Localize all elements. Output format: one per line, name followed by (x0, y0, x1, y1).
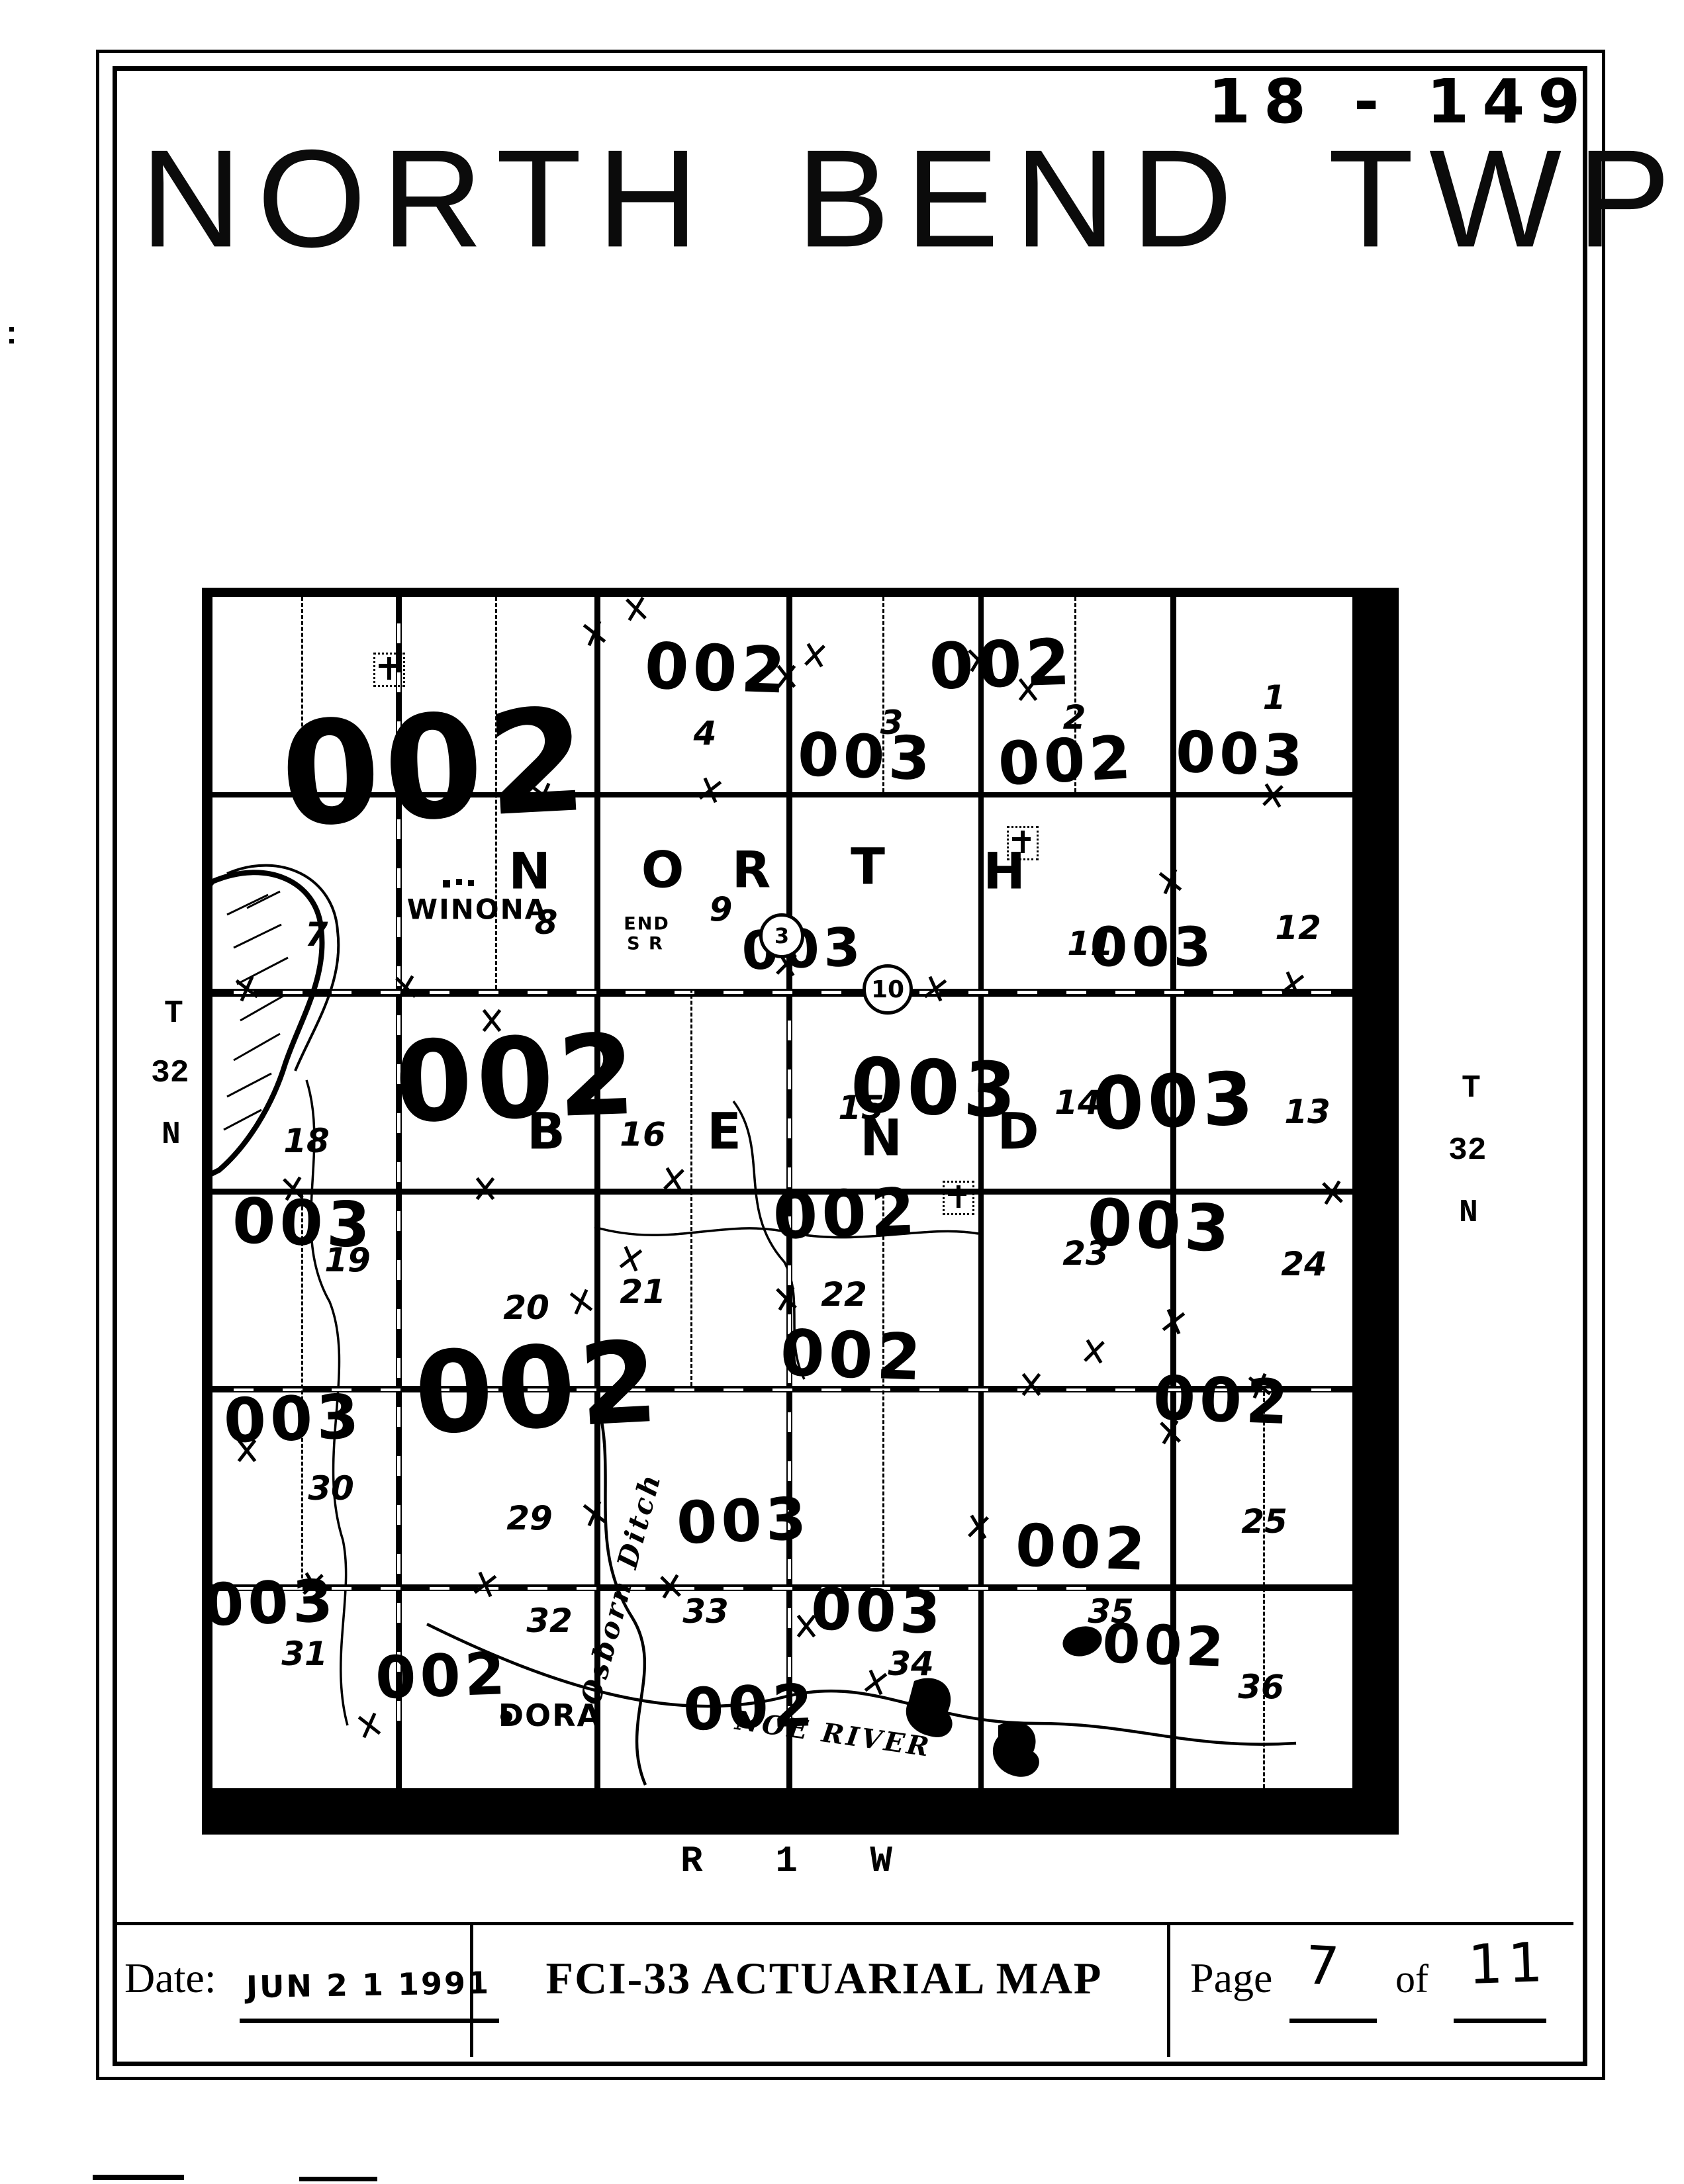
section-number-25: 25 (1241, 1502, 1287, 1541)
section-number-19: 19 (324, 1241, 371, 1279)
place-label-end: END (624, 914, 669, 934)
township-name-letter-r: R (732, 841, 771, 899)
rate-code-003: 003 (1092, 1056, 1258, 1147)
rate-code-002: 002 (277, 676, 594, 858)
rate-code-002: 002 (374, 1639, 510, 1712)
section-number-3: 3 (880, 704, 904, 742)
scanned-actuarial-map-page: 18 - 149 NORTH BEND TWP (0, 0, 1684, 2184)
township-label-left-t: T (164, 996, 183, 1032)
scan-noise-dash (93, 2175, 184, 2180)
footer-divider-2 (1167, 1922, 1170, 2057)
township-name-letter-n: N (860, 1109, 902, 1167)
section-number-1: 1 (1263, 678, 1286, 717)
township-name-letter-n: N (508, 842, 551, 901)
township-label-left-32: 32 (151, 1056, 189, 1091)
rate-code-002: 002 (412, 1316, 665, 1460)
scan-noise-dash (299, 2177, 377, 2181)
rate-code-003: 003 (202, 1567, 338, 1639)
scan-noise-dot (9, 339, 14, 343)
section-number-29: 29 (506, 1499, 553, 1537)
township-name-letter-h: H (983, 842, 1025, 901)
rate-code-002: 002 (779, 1316, 926, 1395)
section-number-33: 33 (682, 1592, 729, 1631)
rate-code-002: 002 (393, 1010, 641, 1148)
rate-code-002: 002 (928, 625, 1075, 704)
section-number-9: 9 (710, 890, 733, 929)
date-stamp: JUN 2 1 1991 (246, 1965, 491, 2005)
rate-code-002: 002 (772, 1174, 920, 1254)
section-number-24: 24 (1281, 1245, 1327, 1283)
footer-map-title: FCI-33 ACTUARIAL MAP (490, 1952, 1158, 2005)
highway-shield-10: 10 (863, 964, 913, 1015)
waterway-label-noe-river: NOE RIVER (733, 1705, 933, 1763)
section-number-7: 7 (305, 915, 328, 954)
waterway-label-osborn-ditch: Osborn Ditch (575, 1469, 668, 1707)
section-number-12: 12 (1275, 909, 1321, 947)
section-number-34: 34 (888, 1645, 934, 1683)
section-number-22: 22 (821, 1275, 867, 1314)
range-label: R 1 W (680, 1840, 917, 1882)
rate-code-002: 002 (643, 629, 790, 708)
section-number-21: 21 (620, 1273, 666, 1311)
section-number-2: 2 (1063, 698, 1086, 737)
section-number-20: 20 (503, 1289, 549, 1327)
place-label-winona: WINONA (407, 893, 547, 926)
page-label: Page (1190, 1954, 1272, 2003)
of-label: of (1395, 1956, 1428, 2002)
section-number-23: 23 (1062, 1234, 1109, 1273)
scan-noise-dot (9, 327, 14, 332)
date-label: Date: (124, 1954, 216, 2003)
rate-code-003: 003 (741, 916, 865, 981)
section-number-11: 11 (1067, 925, 1113, 963)
highway-shield-3: 3 (759, 913, 804, 958)
rate-code-002: 002 (1014, 1511, 1150, 1584)
page-title: NORTH BEND TWP (140, 130, 1684, 269)
section-number-13: 13 (1284, 1093, 1331, 1131)
section-number-32: 32 (526, 1602, 573, 1640)
rate-code-003: 003 (810, 1574, 945, 1647)
township-name-letter-d: D (997, 1102, 1039, 1161)
township-map: 0020020020030020030030030020030030030020… (202, 588, 1399, 1835)
township-label-right-n: N (1459, 1195, 1478, 1231)
rate-code-003: 003 (222, 1381, 364, 1457)
footer-top-rule (117, 1922, 1573, 1925)
township-label-right-32: 32 (1448, 1133, 1487, 1169)
township-name-letter-b: B (527, 1102, 565, 1161)
page-total: 11 (1467, 1931, 1549, 1997)
section-number-35: 35 (1088, 1592, 1134, 1631)
rate-code-003: 003 (1175, 719, 1308, 790)
place-label-dora: DORA (498, 1698, 602, 1733)
township-name-letter-e: E (707, 1102, 741, 1161)
township-label-left-n: N (162, 1117, 181, 1153)
section-number-36: 36 (1238, 1668, 1284, 1706)
section-number-30: 30 (308, 1469, 354, 1508)
page-number-underline (1289, 2019, 1377, 2023)
page-number: 7 (1304, 1934, 1341, 1998)
township-name-letter-o: O (641, 841, 684, 899)
township-label-right-t: T (1462, 1071, 1481, 1107)
date-underline (240, 2019, 499, 2023)
section-number-18: 18 (283, 1122, 330, 1160)
section-number-4: 4 (694, 714, 717, 752)
rate-code-003: 003 (675, 1484, 811, 1557)
map-labels-layer: 0020020020030020030030030020030030030020… (207, 597, 1399, 1835)
section-number-14: 14 (1054, 1083, 1101, 1122)
page-total-underline (1454, 2019, 1546, 2023)
section-number-31: 31 (281, 1635, 328, 1673)
place-label-s-r: S R (627, 934, 664, 954)
rate-code-003: 003 (796, 720, 935, 794)
rate-code-002: 002 (1152, 1363, 1293, 1438)
section-number-16: 16 (620, 1115, 666, 1154)
township-name-letter-t: T (851, 837, 885, 896)
